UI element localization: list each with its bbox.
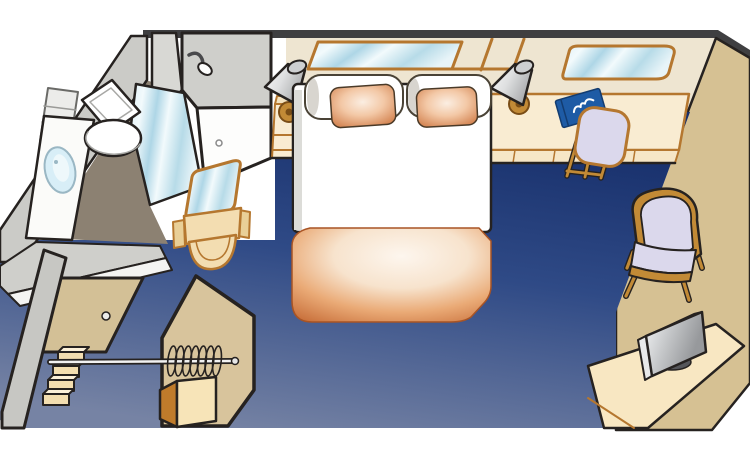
overbed-mirror (308, 42, 462, 69)
desk-mirror (563, 46, 674, 79)
door-knob (102, 312, 110, 320)
double-bed (292, 75, 491, 322)
bed-blanket (292, 228, 491, 322)
shower-drain-dot (216, 140, 222, 146)
cabin-floorplan-illustration (0, 0, 750, 460)
desk-chair-back (573, 105, 631, 168)
basin-drain (54, 160, 58, 164)
floorplan-svg (0, 0, 750, 460)
personal-safe (160, 377, 216, 427)
shower-wall (182, 33, 271, 108)
